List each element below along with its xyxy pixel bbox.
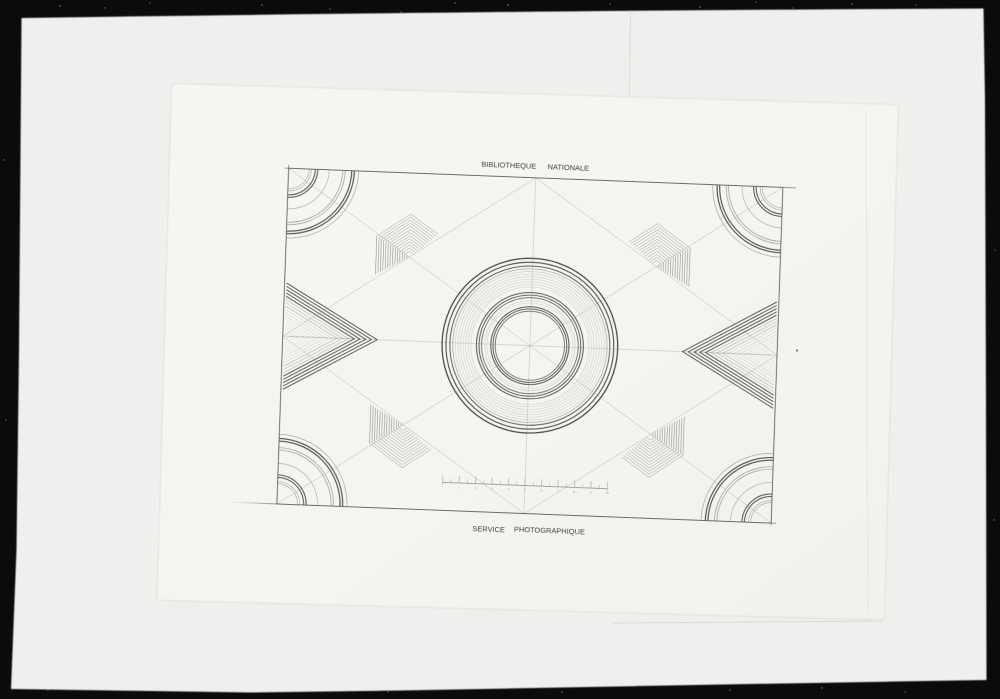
svg-text:8: 8 xyxy=(573,490,575,494)
svg-text:3: 3 xyxy=(491,487,493,491)
svg-text:6: 6 xyxy=(540,489,542,493)
svg-text:10: 10 xyxy=(605,491,609,495)
svg-text:NATIONALE: NATIONALE xyxy=(547,162,589,173)
svg-text:5: 5 xyxy=(524,488,526,492)
svg-text:9: 9 xyxy=(590,491,592,495)
svg-text:4: 4 xyxy=(507,487,509,491)
svg-text:1: 1 xyxy=(458,485,460,489)
svg-text:SERVICE: SERVICE xyxy=(472,524,505,534)
svg-text:2: 2 xyxy=(474,486,476,490)
svg-text:7: 7 xyxy=(557,489,559,493)
